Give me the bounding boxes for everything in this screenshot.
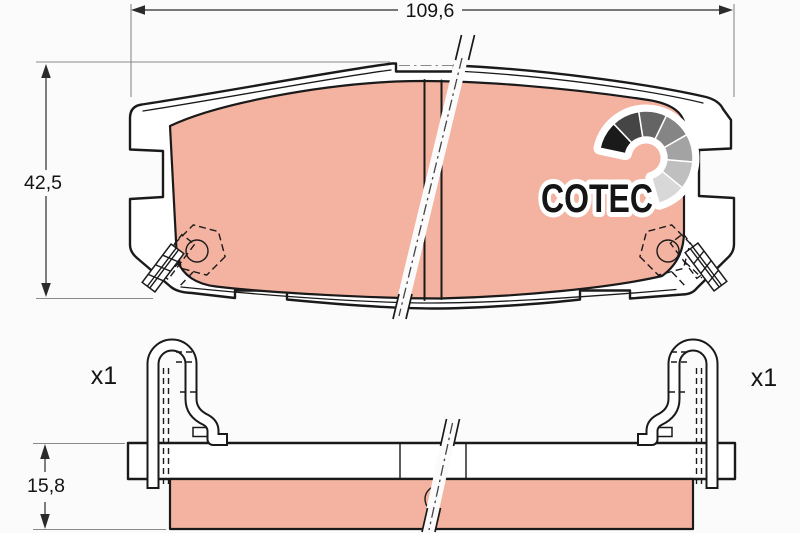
arrowhead-down	[40, 514, 50, 529]
drawing-canvas: COTEC	[0, 0, 800, 533]
arrowhead-left	[131, 5, 145, 15]
brake-pad-drawing: COTEC	[0, 0, 800, 533]
side-view	[128, 345, 735, 533]
front-view: COTEC	[130, 34, 734, 320]
dimension-thickness: 15,8	[27, 444, 65, 529]
quantity-label-right: x1	[751, 364, 777, 392]
arrowhead-up	[40, 444, 50, 459]
plate-bar	[128, 443, 735, 479]
height-value: 42,5	[24, 172, 62, 194]
width-value: 109,6	[406, 0, 455, 22]
quantity-label-left: x1	[91, 362, 117, 390]
arrowhead-up	[41, 64, 51, 78]
dimension-width: 109,6	[131, 0, 733, 22]
arrowhead-down	[41, 283, 51, 297]
logo-text: COTEC	[541, 176, 653, 221]
dimension-height: 42,5	[24, 64, 62, 297]
thickness-value: 15,8	[27, 475, 65, 497]
arrowhead-right	[719, 5, 733, 15]
